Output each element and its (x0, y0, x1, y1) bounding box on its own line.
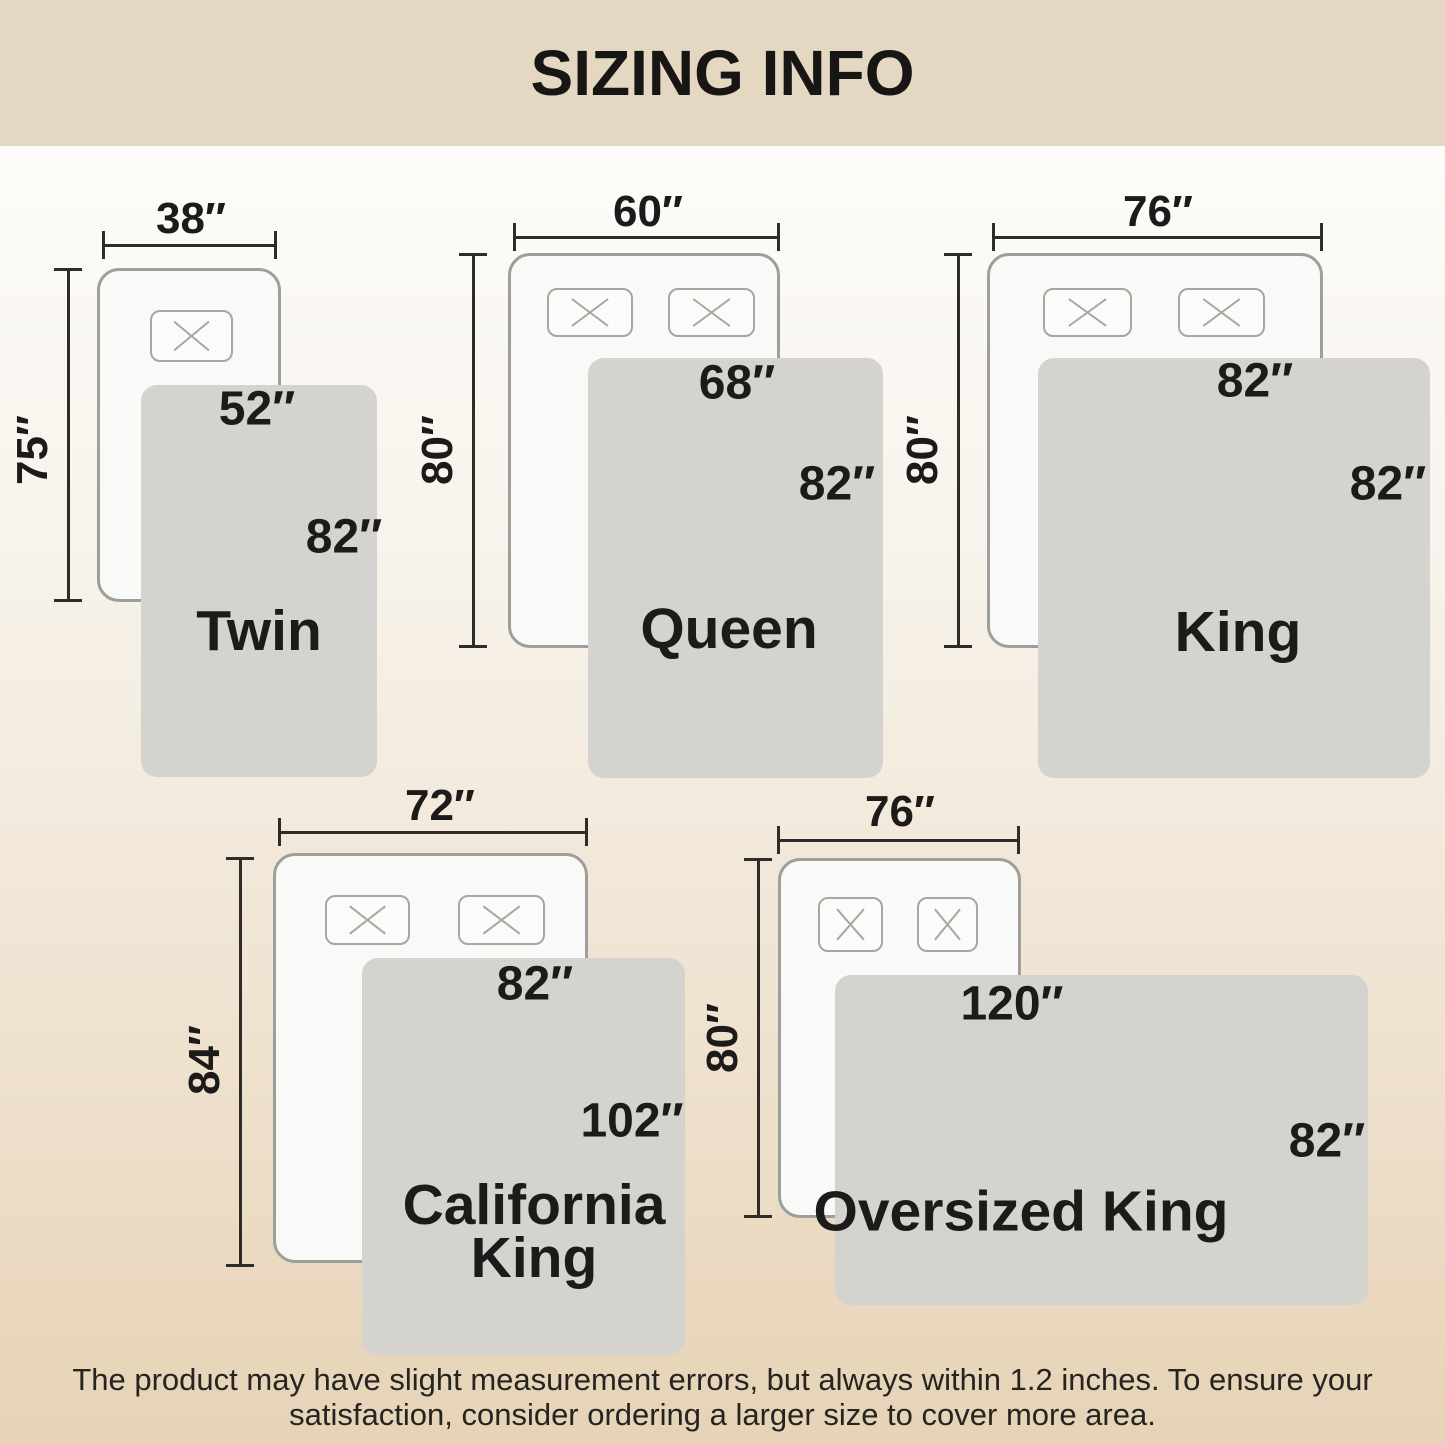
blanket (141, 385, 377, 777)
dimension-tick (54, 268, 82, 271)
dimension-tick (226, 857, 254, 860)
dimension-line (757, 858, 760, 1218)
pillow-cross-icon (1180, 290, 1263, 335)
dimension-tick (744, 1215, 772, 1218)
pillow-cross-icon (152, 312, 231, 360)
mattress-length-dimension (744, 858, 772, 1218)
blanket-width-label: 68″ (699, 356, 775, 411)
pillow (547, 288, 633, 337)
pillow (1043, 288, 1132, 337)
dimension-line (777, 839, 1020, 842)
mattress-length-dimension (944, 253, 972, 648)
blanket-width-label: 82″ (1217, 354, 1293, 409)
dimension-tick (777, 223, 780, 251)
blanket-width-label: 52″ (219, 382, 295, 437)
mattress-length-dimension (226, 857, 254, 1267)
dimension-line (67, 268, 70, 602)
footer-note-line1: The product may have slight measurement … (0, 1362, 1445, 1397)
dimension-line (472, 253, 475, 648)
page-title: SIZING INFO (531, 36, 915, 110)
pillow (150, 310, 233, 362)
pillow (818, 897, 883, 952)
dimension-tick (944, 645, 972, 648)
size-name-label: California King (369, 1179, 699, 1285)
pillow (917, 897, 978, 952)
dimension-tick (459, 253, 487, 256)
dimension-tick (944, 253, 972, 256)
footer-note-line2: satisfaction, consider ordering a larger… (0, 1397, 1445, 1432)
pillow (1178, 288, 1265, 337)
mattress-width-label: 76″ (865, 787, 935, 837)
mattress-length-dimension (54, 268, 82, 602)
blanket-length-label: 102″ (580, 1094, 683, 1149)
dimension-tick (585, 818, 588, 846)
dimension-tick (459, 645, 487, 648)
pillow-cross-icon (549, 290, 631, 335)
mattress-width-label: 60″ (613, 187, 683, 237)
dimension-tick (278, 818, 281, 846)
dimension-tick (226, 1264, 254, 1267)
dimension-tick (1320, 223, 1323, 251)
pillow (668, 288, 755, 337)
dimension-line (278, 831, 588, 834)
blanket-width-label: 120″ (960, 977, 1063, 1032)
dimension-tick (744, 858, 772, 861)
mattress-length-label: 80″ (413, 415, 463, 485)
mattress-length-dimension (459, 253, 487, 648)
pillow-cross-icon (670, 290, 753, 335)
blanket-length-label: 82″ (1289, 1114, 1365, 1169)
dimension-tick (992, 223, 995, 251)
mattress-length-label: 80″ (698, 1003, 748, 1073)
size-name-label: Queen (640, 596, 817, 662)
dimension-tick (777, 826, 780, 854)
dimension-tick (513, 223, 516, 251)
size-name-label: Twin (196, 598, 322, 664)
pillow (325, 895, 410, 945)
dimension-tick (274, 231, 277, 259)
pillow-cross-icon (327, 897, 408, 943)
blanket (362, 958, 685, 1355)
sizing-info-infographic: SIZING INFO 38″ 75″ 52″ 82″ Twin (0, 0, 1445, 1444)
blanket-length-label: 82″ (306, 510, 382, 565)
dimension-line (957, 253, 960, 648)
size-name-label: Oversized King (811, 1186, 1231, 1239)
dimension-tick (102, 231, 105, 259)
pillow-cross-icon (820, 899, 881, 950)
blanket-width-label: 82″ (497, 957, 573, 1012)
mattress-width-label: 72″ (405, 781, 475, 831)
pillow (458, 895, 545, 945)
blanket (1038, 358, 1430, 778)
mattress-length-label: 84″ (180, 1025, 230, 1095)
mattress-length-label: 75″ (8, 415, 58, 485)
footer-note: The product may have slight measurement … (0, 1362, 1445, 1432)
pillow-cross-icon (460, 897, 543, 943)
dimension-tick (54, 599, 82, 602)
dimension-line (239, 857, 242, 1267)
blanket-length-label: 82″ (1350, 457, 1426, 512)
mattress-width-label: 76″ (1123, 187, 1193, 237)
size-name-label: King (1175, 599, 1302, 665)
blanket (588, 358, 883, 778)
dimension-line (102, 244, 277, 247)
title-banner: SIZING INFO (0, 0, 1445, 146)
dimension-tick (1017, 826, 1020, 854)
pillow-cross-icon (919, 899, 976, 950)
mattress-width-label: 38″ (156, 194, 226, 244)
pillow-cross-icon (1045, 290, 1130, 335)
mattress-length-label: 80″ (898, 415, 948, 485)
blanket-length-label: 82″ (799, 457, 875, 512)
